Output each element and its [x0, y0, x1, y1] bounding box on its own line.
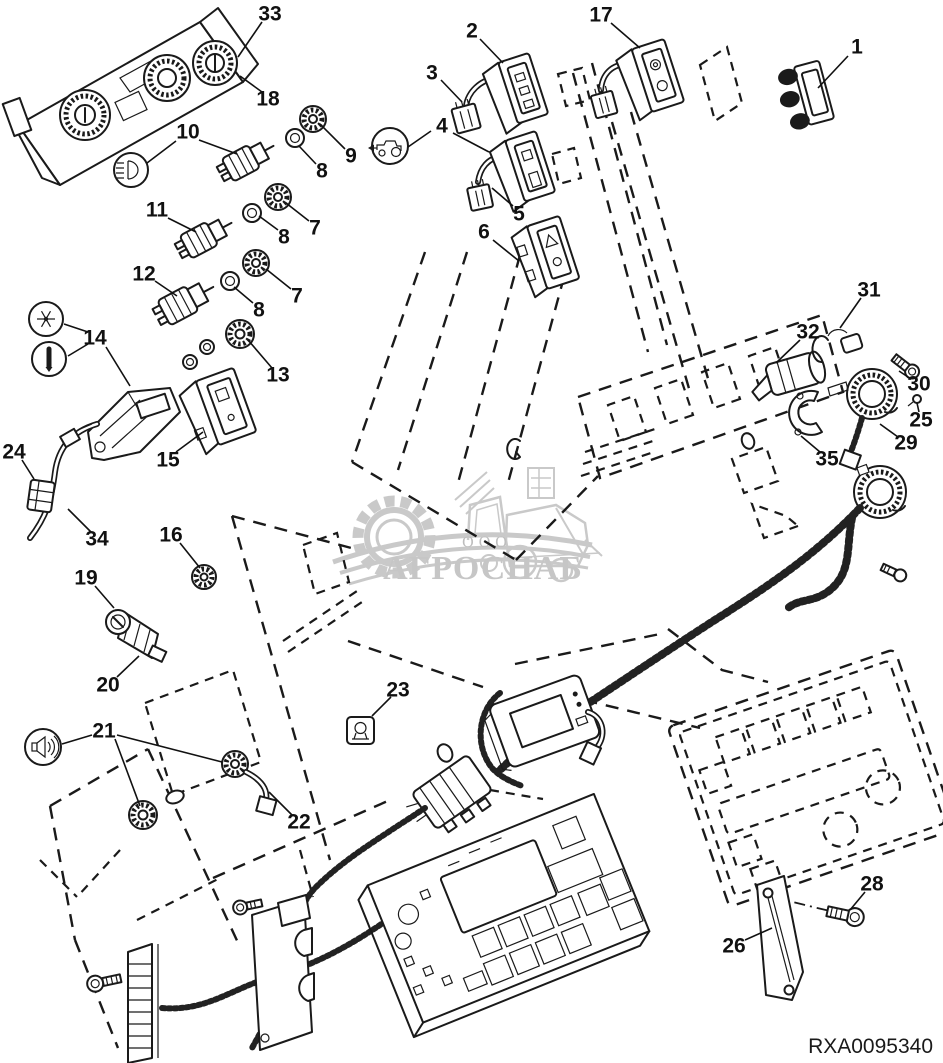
hvac-knob-mode [193, 41, 237, 85]
knob-13 [226, 320, 254, 348]
callout-29: 29 [894, 432, 917, 455]
callout-14: 14 [83, 327, 107, 350]
callout-leader-4 [408, 131, 431, 147]
hvac-knob-fan [60, 90, 110, 140]
ignition-switch-19-20 [106, 610, 166, 662]
snowflake-icon [29, 302, 63, 336]
horn-switch-22 [222, 751, 277, 815]
callout-16: 16 [159, 524, 182, 547]
callout-leader-20 [117, 656, 139, 677]
callout-leader-3 [441, 80, 462, 102]
rocker-switch-1 [773, 60, 834, 131]
rocker-switch-2 [481, 53, 550, 135]
callout-leader-15 [176, 432, 203, 452]
power-socket-lower [854, 465, 908, 584]
callout-leader-10 [147, 141, 176, 163]
dimmer-icon [32, 342, 66, 376]
cable-clip-24 [27, 479, 55, 512]
callout-21: 21 [92, 720, 116, 743]
ribbed-strip [128, 944, 158, 1063]
callout-leader-7 [286, 203, 309, 221]
callout-30: 30 [907, 373, 930, 396]
callout-3: 3 [426, 62, 438, 85]
screw-28 [826, 902, 866, 927]
callout-10: 10 [176, 121, 199, 144]
callout-24: 24 [2, 441, 26, 464]
callout-17: 17 [589, 4, 612, 27]
callout-23: 23 [386, 679, 409, 702]
diagram-code: RXA0095340 [808, 1035, 933, 1058]
callout-8: 8 [253, 299, 265, 322]
callout-33: 33 [258, 3, 281, 26]
lever-nuts [183, 340, 214, 369]
callout-leader-8 [234, 287, 253, 303]
radio-panel-outline [668, 649, 943, 907]
rotary-switch-12 [150, 275, 220, 330]
callout-4: 4 [436, 115, 448, 138]
callout-15: 15 [156, 449, 180, 472]
mounting-nut-8b [243, 204, 261, 222]
callout-9: 9 [345, 145, 357, 168]
callout-leader-8 [259, 216, 278, 230]
speaker-icon [25, 729, 61, 765]
callout-2: 2 [466, 20, 478, 43]
callout-25: 25 [909, 409, 933, 432]
parts-diagram: ООО АГРОСНАБ [0, 0, 943, 1063]
callout-8: 8 [316, 160, 328, 183]
callout-13: 13 [266, 364, 289, 387]
callout-leader-4 [453, 133, 489, 152]
rocker-switch-17 [614, 39, 685, 122]
grommet-1 [740, 431, 757, 450]
grommet-2 [435, 742, 455, 764]
callout-34: 34 [85, 528, 109, 551]
knob-7b [243, 250, 269, 276]
callout-leader-21 [115, 739, 140, 806]
symbol-icon-23 [347, 717, 374, 744]
callout-5: 5 [513, 203, 525, 226]
callout-leader-2 [480, 39, 503, 63]
harness-bracket [252, 895, 314, 1050]
callout-leader-19 [95, 586, 114, 608]
callout-7: 7 [291, 285, 303, 308]
power-socket-29 [840, 369, 897, 470]
mounting-nut-8a [286, 129, 304, 147]
callout-26: 26 [722, 935, 745, 958]
callout-12: 12 [132, 263, 155, 286]
callout-leader-12 [155, 281, 177, 296]
harness-connector-block [402, 754, 499, 845]
watermark-company-name: АГРОСНАБ [383, 550, 583, 587]
callout-32: 32 [796, 321, 819, 344]
hvac-knob-temp [144, 55, 190, 101]
tractor-icon [368, 128, 408, 164]
callout-11: 11 [146, 199, 169, 222]
callout-18: 18 [256, 88, 280, 111]
callout-35: 35 [815, 448, 839, 471]
callout-28: 28 [860, 873, 884, 896]
knob-9 [300, 106, 326, 132]
mounting-nut-8c [221, 272, 239, 290]
callout-22: 22 [287, 811, 310, 834]
callout-leader-9 [320, 124, 345, 149]
watermark: ООО АГРОСНАБ [333, 468, 602, 587]
screw-bottom-left [86, 970, 123, 993]
knob-16 [192, 565, 216, 589]
callout-leader-17 [611, 23, 640, 48]
callout-leader-10 [199, 140, 237, 154]
control-panel-module [355, 794, 653, 1037]
callout-leader-14 [106, 347, 130, 386]
diagram-canvas: ООО АГРОСНАБ [0, 0, 943, 1063]
screw-25 [908, 395, 921, 406]
callout-1: 1 [851, 36, 863, 59]
callout-20: 20 [96, 674, 119, 697]
callout-7: 7 [309, 217, 321, 240]
rocker-switch-4 [488, 131, 557, 213]
rotary-switch-11 [172, 211, 237, 262]
screw-lower [880, 561, 909, 583]
callout-leader-11 [168, 218, 196, 232]
knob-7a [265, 184, 291, 210]
work-light-icon [114, 153, 148, 187]
callout-31: 31 [857, 279, 881, 302]
callout-leader-16 [180, 543, 200, 568]
callout-leader-7 [266, 269, 291, 289]
callout-leader-21 [62, 735, 92, 744]
callout-19: 19 [74, 567, 97, 590]
mounting-strap-26 [757, 876, 803, 1000]
callout-leader-8 [299, 146, 316, 164]
rotary-switch-10 [214, 134, 279, 185]
horn-button-21 [129, 801, 157, 829]
rocker-switch-6 [510, 216, 581, 299]
callout-6: 6 [478, 221, 490, 244]
callout-8: 8 [278, 226, 290, 249]
callout-leader-31 [840, 298, 861, 328]
